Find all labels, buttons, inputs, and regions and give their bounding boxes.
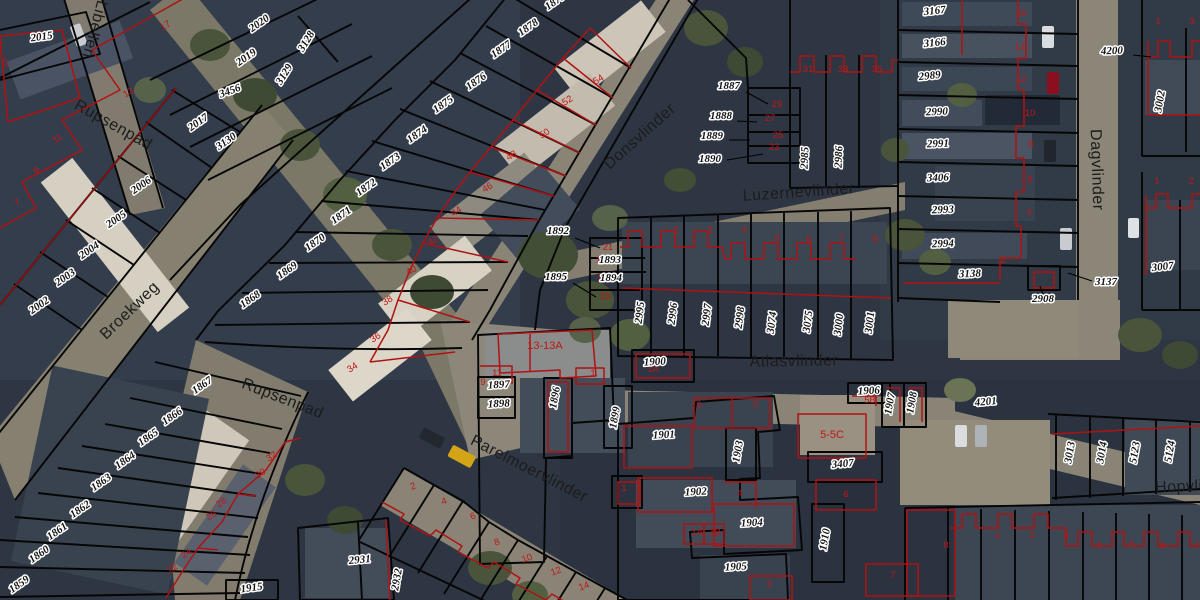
house-number-2: 2 [1000, 255, 1005, 266]
parcel-label-1895: 1895 [545, 271, 568, 283]
house-number-1: 1 [1155, 16, 1160, 27]
parcel-label-1898: 1898 [488, 397, 511, 410]
house-number-6: 6 [1160, 540, 1165, 551]
parcel-label-2908: 2908 [1031, 293, 1055, 305]
house-number-7: 7 [890, 570, 895, 581]
house-number-2: 2 [696, 400, 701, 411]
house-number-33: 33 [838, 64, 849, 75]
parcel-label-3166: 3166 [922, 36, 947, 50]
parcel-label-1904: 1904 [741, 516, 764, 529]
house-number-4: 4 [737, 488, 742, 499]
house-number-1A: 1A [691, 527, 703, 538]
house-number-12: 12 [1016, 74, 1027, 85]
house-number-1: 1 [621, 483, 626, 494]
house-number-1: 1 [995, 530, 1000, 541]
parcel-label-1890: 1890 [699, 153, 722, 165]
parcel-label-1905: 1905 [725, 560, 748, 573]
parcel-label-2931: 2931 [347, 553, 371, 567]
house-number-3: 3 [766, 579, 771, 590]
house-number-3: 3 [707, 225, 712, 236]
house-number-7: 7 [838, 233, 843, 244]
map-canvas[interactable]: 2171311975452504846444240383634323028262… [0, 0, 1200, 600]
house-number-3: 3 [752, 399, 757, 410]
parcel-label-1888: 1888 [710, 110, 733, 122]
house-number-11: 11 [492, 368, 502, 379]
house-number-27: 27 [765, 113, 776, 124]
parcel-label-1901: 1901 [653, 428, 676, 441]
street-name-hopvlinder: Hopvlinder [1155, 477, 1200, 497]
house-number-31: 31 [803, 64, 814, 75]
parcel-label-1887: 1887 [718, 80, 741, 92]
parcel-label-4200: 4200 [1100, 45, 1124, 58]
parcel-label-2985: 2985 [799, 146, 812, 170]
house-number-5: 5 [774, 233, 779, 244]
house-number-1B: 1B [709, 527, 721, 538]
house-number-13-13A: 13-13A [527, 340, 563, 352]
house-number-8: 8 [872, 234, 877, 245]
parcel-label-3137: 3137 [1094, 276, 1118, 288]
house-number-5: 5 [1129, 539, 1134, 550]
house-number-2: 2 [673, 225, 678, 236]
house-number-4: 4 [741, 225, 746, 236]
parcel-label-1902: 1902 [685, 485, 708, 498]
house-number-21: 21 [603, 242, 614, 253]
house-number-35: 35 [872, 64, 883, 75]
house-number-23: 23 [769, 142, 780, 153]
house-number-2: 2 [1188, 176, 1193, 187]
parcel-label-3407: 3407 [830, 457, 854, 471]
parcel-label-3167: 3167 [922, 4, 947, 18]
house-number-15: 15 [600, 291, 611, 302]
house-number-10: 10 [1025, 108, 1036, 119]
parcel-label-3007: 3007 [1150, 260, 1175, 274]
house-number-6: 6 [843, 489, 848, 500]
house-number-3: 3 [1063, 530, 1068, 541]
parcel-label-1897: 1897 [488, 378, 511, 391]
street-name-atlasvlinder: Atlasvlinder [749, 352, 838, 371]
parcel-label-2994: 2994 [931, 238, 955, 251]
house-number-1: 1 [1154, 176, 1159, 187]
parcel-label-2991: 2991 [926, 138, 949, 151]
house-number-8: 8 [1028, 139, 1033, 150]
house-number-29: 29 [772, 99, 783, 110]
parcel-label-2993: 2993 [931, 204, 955, 217]
house-number-5-5C: 5-5C [820, 429, 844, 441]
house-number-4: 4 [1096, 540, 1101, 551]
parcel-label-1900: 1900 [644, 355, 667, 368]
parcel-label-1889: 1889 [701, 130, 724, 142]
parcel-label-2989: 2989 [917, 69, 942, 83]
house-number-1: 1 [590, 368, 595, 379]
parcel-label-3138: 3138 [958, 268, 982, 281]
house-number-8: 8 [943, 540, 948, 551]
parcel-label-1893: 1893 [599, 254, 622, 266]
house-number-2: 2 [1029, 530, 1034, 541]
parcel-label-4201: 4201 [973, 395, 997, 409]
parcel-label-3406: 3406 [926, 172, 950, 185]
house-number-7: 7 [1194, 540, 1199, 551]
parcel-label-1892: 1892 [547, 225, 570, 237]
parcel-label-2986: 2986 [833, 145, 846, 169]
house-number-6: 6 [1027, 174, 1032, 185]
house-number-3: 3 [1189, 16, 1194, 27]
parcel-label-1894: 1894 [600, 272, 623, 284]
house-number-9: 9 [480, 377, 485, 388]
parcel-label-2990: 2990 [925, 106, 949, 119]
house-number-4: 4 [1026, 207, 1031, 218]
house-number-25: 25 [773, 130, 784, 141]
house-number-16: 16 [1016, 8, 1027, 19]
parcel-label-1906: 1906 [858, 384, 881, 397]
house-number-6: 6 [806, 234, 811, 245]
house-number-14: 14 [1015, 42, 1026, 53]
map-viewport[interactable]: 2171311975452504846444240383634323028262… [0, 0, 1200, 600]
street-name-dagvlinder: Dagvlinder [1087, 129, 1107, 211]
